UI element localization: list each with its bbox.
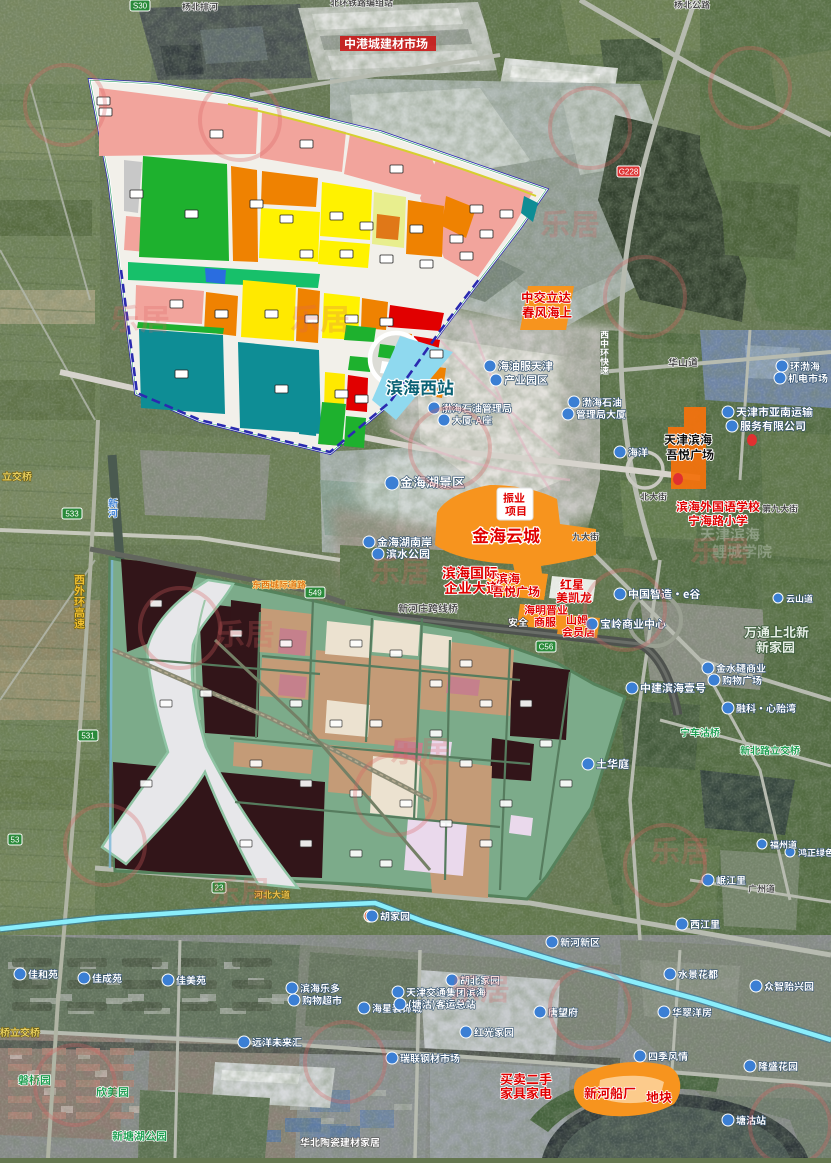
svg-text:S30: S30 <box>133 2 148 11</box>
svg-text:53: 53 <box>11 836 20 845</box>
svg-text:C56: C56 <box>539 643 554 652</box>
svg-text:549: 549 <box>308 589 322 598</box>
svg-text:533: 533 <box>65 510 79 519</box>
svg-text:531: 531 <box>81 732 95 741</box>
svg-text:G228: G228 <box>619 168 639 177</box>
